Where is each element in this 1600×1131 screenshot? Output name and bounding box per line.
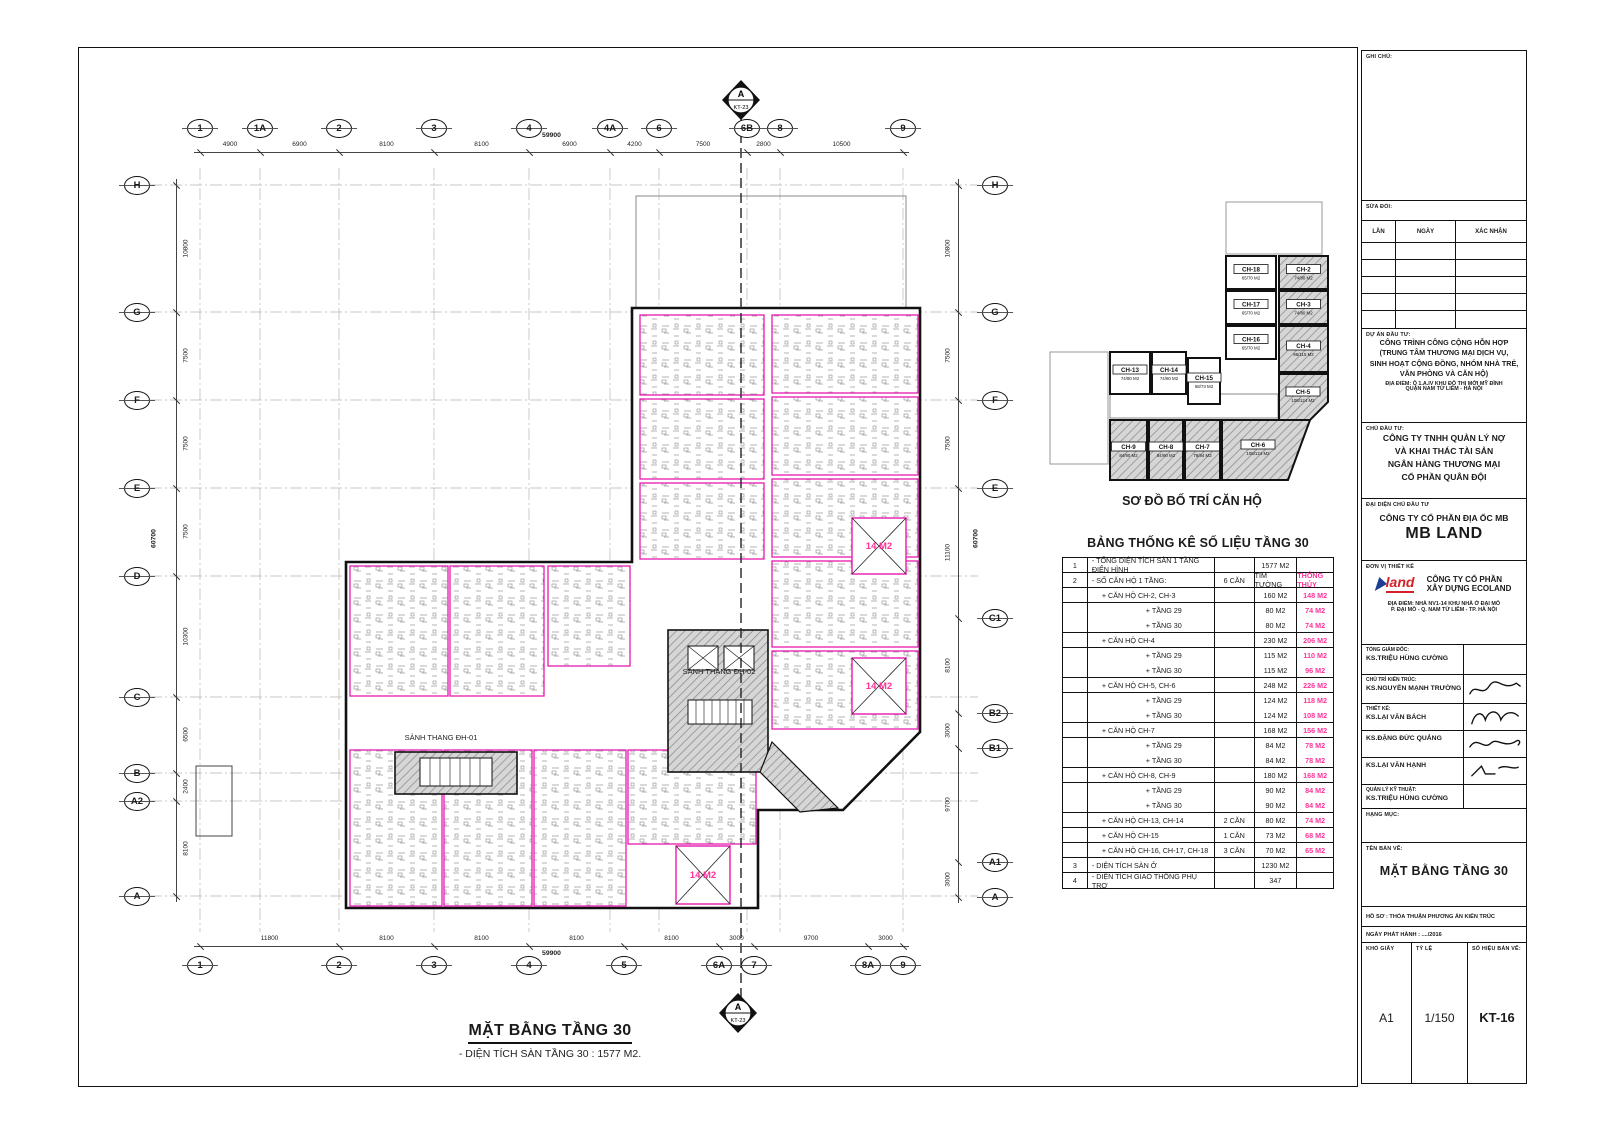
svg-text:14 M2: 14 M2 [866,681,892,692]
stats-cell [1063,708,1088,722]
keyplan-unit-area: 65/70 M2 [1242,311,1261,316]
stats-cell: TIM TƯỜNG [1255,573,1298,587]
stats-cell: + CĂN HỘ CH-15 [1088,828,1215,842]
architectural-drawing-page: { "colors": { "magenta": "#e619ae", "pin… [0,0,1600,1131]
dossier-text: HỒ SƠ : THỎA THUẬN PHƯƠNG ÁN KIẾN TRÚC [1362,914,1495,920]
paper-size-value: A1 [1362,952,1411,1083]
plan-title: MẶT BẰNG TẦNG 30 [468,1022,631,1044]
keyplan-unit-area: 96/115 M2 [1293,352,1314,357]
keyplan-unit-id: CH-15 [1195,375,1213,382]
stats-cell: 4 [1063,873,1088,888]
stats-cell: 90 M2 [1255,798,1298,812]
role-label: CHỦ TRÌ KIẾN TRÚC: [1366,677,1463,683]
keyplan-unit-id: CH-16 [1242,337,1260,344]
dim-value: 4900 [200,141,260,148]
dim-line-left [176,179,177,902]
keyplan-unit-id: CH-5 [1296,389,1311,396]
stats-row: + CĂN HỘ CH-13, CH-142 CĂN80 M274 M2 [1063,813,1333,828]
title-block: GHI CHÚ: SỬA ĐỔI: LẦN NGÀY XÁC NHẬN DỰ Á… [1357,47,1530,1087]
dim-value: 8100 [183,818,190,878]
ecoland-logo: land [1377,574,1421,594]
stats-cell [1063,603,1088,618]
issue-date-section: NGÀY PHÁT HÀNH : ..../2016 [1362,927,1526,943]
dim-value: 10300 [183,606,190,666]
stats-cell: 6 CĂN [1215,573,1255,587]
stats-cell: 230 M2 [1255,633,1298,647]
stats-cell: 96 M2 [1297,663,1333,677]
revision-row [1362,260,1526,277]
keyplan-unit-id: CH-13 [1121,367,1139,374]
signature-mark [1466,706,1524,728]
keyplan-unit-CH-6 [1222,420,1310,480]
project-line: (TRUNG TÂM THƯƠNG MẠI DỊCH VỤ, [1362,348,1526,358]
stats-cell [1063,663,1088,677]
stats-cell: 2 [1063,573,1088,587]
stats-cell: - SỐ CĂN HỘ 1 TẦNG: [1088,573,1215,587]
stats-cell [1063,723,1088,737]
investor-label: CHỦ ĐẦU TƯ: [1362,423,1526,432]
stats-cell [1215,678,1255,692]
stats-row: + TẦNG 2990 M284 M2 [1063,783,1333,798]
stats-cell: 2 CĂN [1215,813,1255,827]
keyplan-unit-area: 84/90 M2 [1157,453,1176,458]
signature-row: QUẢN LÝ KỸ THUẬT:KS.TRIỆU HÙNG CƯỜNG [1362,785,1526,809]
keyplan-unit-id: CH-2 [1296,267,1311,274]
grid-bubble-right-H: H [982,176,1008,195]
stats-cell: 84 M2 [1297,783,1333,798]
dim-value: 9700 [945,775,952,835]
stats-cell: 148 M2 [1297,588,1333,602]
stats-cell: 180 M2 [1255,768,1298,782]
grid-bubble-top-6B: 6B [734,119,760,138]
stats-cell [1215,693,1255,708]
grid-bubble-bottom-8A: 8A [855,956,881,975]
role-label: QUẢN LÝ KỸ THUẬT: [1366,787,1463,793]
grid-bubble-right-B1: B1 [982,739,1008,758]
stats-row: + TẦNG 29124 M2118 M2 [1063,693,1333,708]
designer-name-line: CÔNG TY CỔ PHẦN [1427,575,1512,584]
svg-text:SẢNH THANG ĐH-01: SẢNH THANG ĐH-01 [405,733,478,742]
stats-row: 2- SỐ CĂN HỘ 1 TẦNG:6 CĂNTIM TƯỜNGTHÔNG … [1063,573,1333,588]
dim-value: 8100 [357,935,417,942]
role-name: KS.LẠI VĂN HẠNH [1366,762,1463,769]
stats-cell [1215,603,1255,618]
grid-bubble-left-D: D [124,567,150,586]
stats-cell: + TẦNG 29 [1088,603,1215,618]
stats-cell: 110 M2 [1297,648,1333,663]
signature-mark [1466,733,1524,755]
grid-bubble-left-E: E [124,479,150,498]
stats-cell [1297,558,1333,572]
rev-col-ngay: NGÀY [1396,221,1456,242]
dim-value: 6900 [540,141,600,148]
keyplan-unit-area: 78/84 M2 [1193,453,1212,458]
stats-row: + TẦNG 30115 M296 M2 [1063,663,1333,678]
stats-cell [1063,588,1088,602]
stats-cell: + CĂN HỘ CH-16, CH-17, CH-18 [1088,843,1215,857]
dim-line-right [958,179,959,903]
keyplan-unit-area: 108/124 M2 [1246,451,1270,456]
stats-row: + TẦNG 3084 M278 M2 [1063,753,1333,768]
stats-cell: + CĂN HỘ CH-5, CH-6 [1088,678,1215,692]
dim-line-bottom [194,946,909,947]
keyplan-unit-area: 108/124 M2 [1291,398,1315,403]
grid-bubble-left-G: G [124,303,150,322]
stats-cell [1215,588,1255,602]
stats-cell: 118 M2 [1297,693,1333,708]
stats-cell: + TẦNG 29 [1088,693,1215,708]
dim-total: 60700 [151,499,158,579]
stats-cell [1063,648,1088,663]
plan-subtitle: - DIỆN TÍCH SÀN TẦNG 30 : 1577 M2. [400,1048,700,1060]
dossier-section: HỒ SƠ : THỎA THUẬN PHƯƠNG ÁN KIẾN TRÚC [1362,907,1526,927]
designer-section: ĐƠN VỊ THIẾT KẾ land CÔNG TY CỔ PHẦN XÂY… [1362,561,1526,645]
investor-line: CỔ PHẦN QUÂN ĐỘI [1362,471,1526,484]
stats-row: + TẦNG 30124 M2108 M2 [1063,708,1333,723]
drawing-number-cell: SỐ HIỆU BẢN VẼ: KT-16 [1468,943,1526,1083]
scale-label: TỶ LỆ [1412,943,1467,952]
project-line: SINH HOẠT CỘNG ĐỒNG, NHÓM NHÀ TRẺ, [1362,359,1526,369]
revision-row [1362,243,1526,260]
grid-bubble-right-F: F [982,391,1008,410]
role-name: KS.ĐẶNG ĐỨC QUẢNG [1366,735,1463,742]
revision-table-header: LẦN NGÀY XÁC NHẬN [1362,221,1526,243]
project-label: DỰ ÁN ĐẦU TƯ: [1362,329,1526,338]
dim-value: 7500 [183,326,190,386]
keyplan-unit-area: 74/80 M2 [1160,376,1179,381]
stats-cell [1215,768,1255,782]
grid-bubble-top-9: 9 [890,119,916,138]
grid-bubble-bottom-3: 3 [421,956,447,975]
dim-value: 3000 [856,935,916,942]
stats-cell: - DIỆN TÍCH SÀN Ở [1088,858,1215,872]
dim-value: 8100 [945,635,952,695]
grid-bubble-bottom-9: 9 [890,956,916,975]
stats-cell: 168 M2 [1255,723,1298,737]
drawing-number-value: KT-16 [1468,952,1526,1083]
stats-cell: 80 M2 [1255,603,1298,618]
keyplan-unit-id: CH-4 [1296,343,1311,350]
dim-value: 3000 [945,700,952,760]
category-label: HẠNG MỤC: [1362,809,1526,818]
stats-cell [1063,633,1088,647]
signature-row: THIẾT KẾ:KS.LẠI VĂN BÁCH [1362,704,1526,731]
stats-cell: 80 M2 [1255,618,1298,632]
notes-label: GHI CHÚ: [1362,51,1526,60]
stats-cell: + TẦNG 30 [1088,708,1215,722]
signature-rows: TỔNG GIÁM ĐỐC:KS.TRIỆU HÙNG CƯỜNGCHỦ TRÌ… [1362,645,1526,809]
stats-cell: 74 M2 [1297,603,1333,618]
signature-cell [1464,758,1526,784]
rev-col-lan: LẦN [1362,221,1396,242]
investor-rep-name: CÔNG TY CỔ PHẦN ĐỊA ỐC MB [1362,512,1526,525]
role-name: KS.TRIỆU HÙNG CƯỜNG [1366,795,1463,802]
grid-bubble-bottom-4: 4 [516,956,542,975]
grid-bubble-top-2: 2 [326,119,352,138]
grid-bubble-left-A2: A2 [124,792,150,811]
stats-row: + TẦNG 3080 M274 M2 [1063,618,1333,633]
stats-cell: 124 M2 [1255,708,1298,722]
signature-cell [1464,645,1526,674]
stats-cell: 84 M2 [1255,753,1298,767]
keyplan-unit-id: CH-8 [1159,444,1174,451]
category-section: HẠNG MỤC: [1362,809,1526,843]
designer-label: ĐƠN VỊ THIẾT KẾ [1362,561,1526,570]
revision-label-section: SỬA ĐỔI: [1362,201,1526,221]
grid-bubble-top-6: 6 [646,119,672,138]
stats-cell [1063,618,1088,632]
revision-table: LẦN NGÀY XÁC NHẬN [1362,221,1526,329]
stats-cell: 347 [1255,873,1298,888]
issue-date-text: NGÀY PHÁT HÀNH : ..../2016 [1362,932,1442,938]
stats-cell: 226 M2 [1297,678,1333,692]
stats-row: + CĂN HỘ CH-4230 M2206 M2 [1063,633,1333,648]
section-marker-bottom: A KT-23 [719,993,757,1033]
dim-value: 11800 [240,935,300,942]
role-label: TỔNG GIÁM ĐỐC: [1366,647,1463,653]
drawing-number-label: SỐ HIỆU BẢN VẼ: [1468,943,1526,952]
stats-cell [1063,783,1088,798]
dim-value: 8100 [642,935,702,942]
investor-line: VÀ KHAI THÁC TÀI SẢN [1362,445,1526,458]
stats-cell: 3 [1063,858,1088,872]
stats-cell [1297,873,1333,888]
dim-value: 7500 [945,414,952,474]
stats-cell: + TẦNG 29 [1088,783,1215,798]
stats-cell: 84 M2 [1297,798,1333,812]
stats-cell [1215,798,1255,812]
stats-cell [1215,873,1255,888]
dim-value: 8100 [547,935,607,942]
dim-value: 7500 [673,141,733,148]
dim-value: 3000 [945,849,952,909]
grid-bubble-right-E: E [982,479,1008,498]
stats-cell [1215,618,1255,632]
stats-cell: 68 M2 [1297,828,1333,842]
logo-word: land [1386,574,1415,593]
stats-cell: 206 M2 [1297,633,1333,647]
stats-cell: - DIỆN TÍCH GIAO THÔNG PHỤ TRỢ [1088,873,1215,888]
designer-name-line: XÂY DỰNG ECOLAND [1427,584,1512,593]
grid-bubble-right-A: A [982,888,1008,907]
stats-cell: 70 M2 [1255,843,1298,857]
grid-bubble-right-B2: B2 [982,704,1008,723]
stats-cell [1215,708,1255,722]
dim-value: 2800 [734,141,794,148]
revision-row [1362,294,1526,311]
grid-bubble-bottom-5: 5 [611,956,637,975]
stats-cell: 160 M2 [1255,588,1298,602]
grid-bubble-top-4A: 4A [597,119,623,138]
stats-row: + CĂN HỘ CH-5, CH-6248 M2226 M2 [1063,678,1333,693]
stats-cell [1215,753,1255,767]
dim-value: 8100 [357,141,417,148]
revision-row [1362,311,1526,328]
revision-row [1362,277,1526,294]
stats-cell: 73 M2 [1255,828,1298,842]
dim-value: 8100 [452,935,512,942]
dim-line-top [194,152,909,153]
paper-size-label: KHỔ GIẤY [1362,943,1411,952]
project-line: CÔNG TRÌNH CÔNG CỘNG HỖN HỢP [1362,338,1526,348]
keyplan-unit-area: 68/73 M2 [1195,384,1214,389]
role-name: KS.NGUYỄN MẠNH TRƯỜNG [1366,685,1463,692]
stats-cell [1215,663,1255,677]
grid-bubble-left-C: C [124,688,150,707]
rev-col-xacnhan: XÁC NHẬN [1456,221,1526,242]
keyplan-unit-area: 65/70 M2 [1242,276,1261,281]
svg-text:14 M2: 14 M2 [690,870,716,881]
svg-text:KT-23: KT-23 [734,105,749,111]
svg-text:A: A [735,1002,742,1012]
stats-cell [1063,828,1088,842]
signature-cell [1464,731,1526,757]
signature-cell [1464,785,1526,808]
dim-value: 2400 [183,757,190,817]
grid-bubble-right-G: G [982,303,1008,322]
project-line: VĂN PHÒNG VÀ CĂN HỘ) [1362,369,1526,379]
section-marker-top: A KT-23 [722,80,760,120]
dim-value: 11100 [945,523,952,583]
stats-cell: 3 CĂN [1215,843,1255,857]
stats-table: BẢNG THỐNG KÊ SỐ LIỆU TẦNG 30 1- TỔNG DI… [1062,536,1334,889]
revision-label: SỬA ĐỔI: [1362,201,1526,210]
stats-row: + TẦNG 2984 M278 M2 [1063,738,1333,753]
dim-value: 6900 [270,141,330,148]
investor-rep-brand: MB LAND [1362,525,1526,543]
stats-cell [1063,753,1088,767]
format-scale-number-strip: KHỔ GIẤY A1 TỶ LỆ 1/150 SỐ HIỆU BẢN VẼ: … [1362,943,1526,1083]
stats-cell: 1230 M2 [1255,858,1298,872]
stats-cell [1063,843,1088,857]
signature-row: KS.ĐẶNG ĐỨC QUẢNG [1362,731,1526,758]
keyplan-unit-id: CH-17 [1242,302,1260,309]
stats-cell: 248 M2 [1255,678,1298,692]
drawing-name-section: TÊN BẢN VẼ: MẶT BẰNG TẦNG 30 [1362,843,1526,907]
stats-cell [1215,648,1255,663]
grid-bubble-bottom-7: 7 [741,956,767,975]
role-label: THIẾT KẾ: [1366,706,1463,712]
stats-table-title: BẢNG THỐNG KÊ SỐ LIỆU TẦNG 30 [1062,536,1334,550]
signature-row: KS.LẠI VĂN HẠNH [1362,758,1526,785]
keyplan-unit-id: CH-6 [1251,442,1266,449]
stats-cell: 74 M2 [1297,618,1333,632]
stats-cell: 65 M2 [1297,843,1333,857]
stats-table-body: 1- TỔNG DIỆN TÍCH SÀN 1 TẦNG ĐIỂN HÌNH15… [1062,557,1334,889]
stats-cell [1063,693,1088,708]
investor-line: CÔNG TY TNHH QUẢN LÝ NỢ [1362,432,1526,445]
keyplan-unit-area: 65/70 M2 [1242,346,1261,351]
stats-cell: + TẦNG 30 [1088,618,1215,632]
stats-cell: + TẦNG 30 [1088,663,1215,677]
role-name: KS.TRIỆU HÙNG CƯỜNG [1366,655,1463,662]
stats-cell: + CĂN HỘ CH-8, CH-9 [1088,768,1215,782]
stats-row: + CĂN HỘ CH-7168 M2156 M2 [1063,723,1333,738]
stats-row: + TẦNG 3090 M284 M2 [1063,798,1333,813]
stats-cell: 115 M2 [1255,663,1298,677]
grid-bubble-bottom-2: 2 [326,956,352,975]
svg-text:KT-23: KT-23 [731,1018,746,1024]
grid-bubble-bottom-6A: 6A [706,956,732,975]
stats-cell: 90 M2 [1255,783,1298,798]
dim-value: 7500 [183,414,190,474]
keyplan-unit-id: CH-14 [1160,367,1178,374]
svg-text:14 M2: 14 M2 [866,541,892,552]
keyplan-unit-id: CH-3 [1296,302,1311,309]
grid-bubble-right-C1: C1 [982,609,1008,628]
scale-value: 1/150 [1412,952,1467,1083]
grid-bubble-bottom-1: 1 [187,956,213,975]
stats-cell: 84 M2 [1255,738,1298,753]
stats-cell [1063,678,1088,692]
stats-cell: 80 M2 [1255,813,1298,827]
stats-cell: + CĂN HỘ CH-7 [1088,723,1215,737]
signature-row: CHỦ TRÌ KIẾN TRÚC:KS.NGUYỄN MẠNH TRƯỜNG [1362,675,1526,704]
signature-cell [1464,704,1526,730]
stats-cell [1215,558,1255,572]
stats-cell [1215,738,1255,753]
stats-cell: + TẦNG 30 [1088,753,1215,767]
grid-bubble-left-B: B [124,764,150,783]
stats-cell: 74 M2 [1297,813,1333,827]
dim-total: 60700 [973,499,980,579]
svg-text:SẢNH THANG ĐH-02: SẢNH THANG ĐH-02 [683,667,756,676]
grid-bubble-top-3: 3 [421,119,447,138]
stats-cell: 108 M2 [1297,708,1333,722]
dim-value: 3000 [707,935,767,942]
stats-row: + CĂN HỘ CH-16, CH-17, CH-183 CĂN70 M265… [1063,843,1333,858]
stats-row: + CĂN HỘ CH-2, CH-3160 M2148 M2 [1063,588,1333,603]
stats-cell: 156 M2 [1297,723,1333,737]
dim-value: 10800 [945,218,952,278]
stats-cell: 1577 M2 [1255,558,1298,572]
signature-cell [1464,675,1526,703]
dim-value: 7500 [945,326,952,386]
stats-cell: + TẦNG 29 [1088,648,1215,663]
grid-bubble-left-F: F [124,391,150,410]
stats-cell [1215,723,1255,737]
stats-cell: 124 M2 [1255,693,1298,708]
stats-cell [1215,858,1255,872]
keyplan-unit-area: 74/80 M2 [1121,376,1140,381]
stats-row: 4- DIỆN TÍCH GIAO THÔNG PHỤ TRỢ347 [1063,873,1333,888]
stats-cell [1063,813,1088,827]
grid-bubble-top-1: 1 [187,119,213,138]
stats-cell: - TỔNG DIỆN TÍCH SÀN 1 TẦNG ĐIỂN HÌNH [1088,558,1215,572]
grid-bubble-top-8: 8 [767,119,793,138]
stats-row: + TẦNG 29115 M2110 M2 [1063,648,1333,663]
signature-row: TỔNG GIÁM ĐỐC:KS.TRIỆU HÙNG CƯỜNG [1362,645,1526,675]
stats-cell [1215,633,1255,647]
stats-cell: 78 M2 [1297,738,1333,753]
dim-value: 4200 [605,141,665,148]
stats-row: + CĂN HỘ CH-151 CĂN73 M268 M2 [1063,828,1333,843]
stats-cell: 1 CĂN [1215,828,1255,842]
role-name: KS.LẠI VĂN BÁCH [1366,714,1463,721]
stats-row: + TẦNG 2980 M274 M2 [1063,603,1333,618]
dim-value: 10500 [812,141,872,148]
dim-value: 8100 [452,141,512,148]
stats-cell: 168 M2 [1297,768,1333,782]
stats-cell: + CĂN HỘ CH-13, CH-14 [1088,813,1215,827]
dim-value: 9700 [781,935,841,942]
keyplan-unit-area: 84/90 M2 [1119,453,1138,458]
keyplan-unit-id: CH-9 [1121,444,1136,451]
grid-bubble-left-A: A [124,887,150,906]
stats-cell: + CĂN HỘ CH-2, CH-3 [1088,588,1215,602]
key-plan-title: SƠ ĐỒ BỐ TRÍ CĂN HỘ [1082,494,1302,508]
scale-cell: TỶ LỆ 1/150 [1412,943,1468,1083]
